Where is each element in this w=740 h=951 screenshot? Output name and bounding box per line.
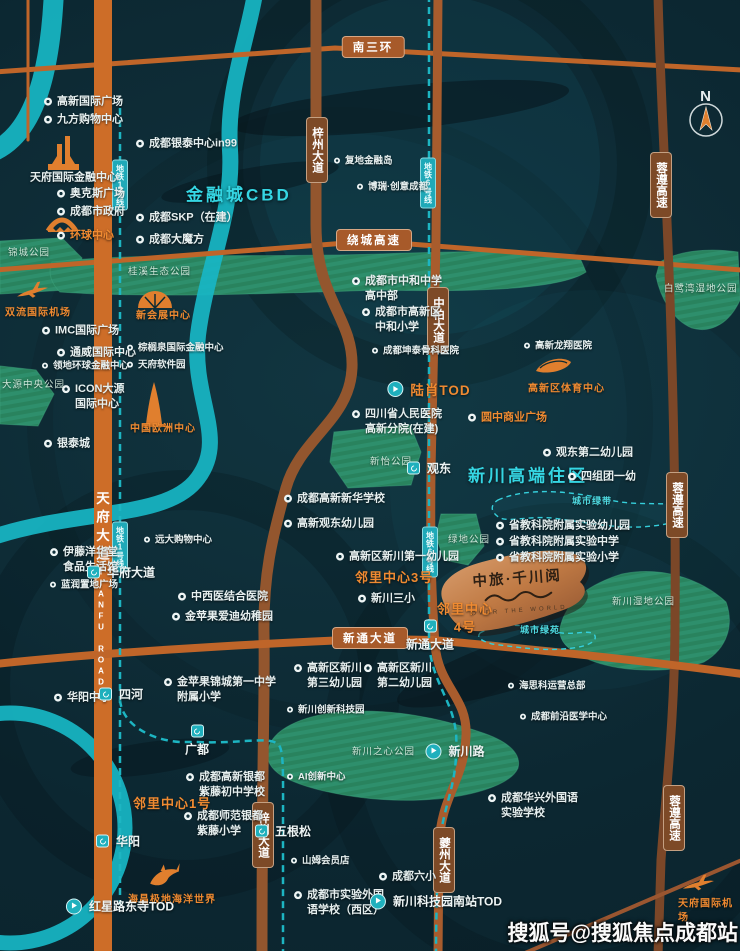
poi-label: 成都市政府 <box>57 205 125 220</box>
poi-text: 锦城公园 <box>8 248 50 261</box>
project-logo: 中旅·千川阅 OVER THE WORLD <box>446 562 591 619</box>
poi-marker-icon <box>294 891 302 899</box>
poi-marker-icon <box>362 308 370 316</box>
poi-text: 成都市中和中学 高中部 <box>365 274 442 304</box>
poi-label: 四组团一幼 <box>568 470 636 485</box>
poi-marker-icon <box>136 140 144 148</box>
poi-marker-icon <box>352 410 360 418</box>
compass-n-label: N <box>700 88 712 105</box>
poi-text: 高新国际广场 <box>57 95 123 110</box>
station-name: 四河 <box>119 686 143 703</box>
station-name: 新川科技园南站TOD <box>393 893 502 910</box>
poi-label: 四川省人民医院 高新分院(在建) <box>352 407 442 437</box>
poi-marker-icon <box>372 348 378 354</box>
poi-marker-icon <box>488 794 496 802</box>
poi-text: 复地金融岛 <box>345 156 393 169</box>
station-name: 五根松 <box>275 823 311 840</box>
poi-text: 省教科院附属实验幼儿园 <box>509 519 630 534</box>
poi-text: 成都华兴外国语 实验学校 <box>501 791 578 821</box>
station-name: 广都 <box>185 741 209 758</box>
poi-label: 成都师范银都 紫藤小学 <box>184 809 263 839</box>
poi-marker-icon <box>364 664 372 672</box>
poi-text: 新川之心公园 <box>352 747 415 760</box>
location-map: 中旅·千川阅 OVER THE WORLD N 搜狐号@搜狐焦点成都站 高新国际… <box>0 0 740 951</box>
poi-marker-icon <box>184 812 192 820</box>
watermark: 搜狐号@搜狐焦点成都站 <box>508 917 738 947</box>
poi-text: 成都银泰中心in99 <box>149 137 237 152</box>
metro-station: 华阳 <box>96 833 140 850</box>
poi-label: 双流国际机场 <box>5 306 71 320</box>
poi-marker-icon <box>136 214 144 222</box>
poi-label: 九方购物中心 <box>44 113 123 128</box>
poi-label: 蓝润置地广场 <box>50 580 118 593</box>
poi-label: 城市绿带 <box>572 495 612 507</box>
poi-marker-icon <box>496 538 504 546</box>
metro-station-marker <box>96 835 109 848</box>
metro-station: 新川路 <box>425 743 484 760</box>
metro-station: 华府大道 <box>87 564 155 581</box>
poi-label: 圆中商业广场 <box>468 411 547 426</box>
poi-label: ICON大源 国际中心 <box>62 382 125 412</box>
station-name: 华府大道 <box>107 564 155 581</box>
ifs-towers-icon <box>48 136 79 170</box>
poi-label: 博瑞·创意成都 <box>357 182 428 195</box>
poi-label: 天府国际金融中心 <box>30 171 118 186</box>
poi-label: 银泰城 <box>44 437 90 452</box>
poi-marker-icon <box>50 582 56 588</box>
poi-text: 新川湿地公园 <box>612 597 675 610</box>
poi-marker-icon <box>284 520 292 528</box>
poi-label: 成都SKP（在建） <box>136 211 238 226</box>
poi-text: 中国欧洲中心 <box>130 422 196 436</box>
road-label-pill: 蓉遵高速 <box>666 472 688 538</box>
compass: N <box>687 88 725 106</box>
metro-station-marker <box>66 898 82 914</box>
poi-marker-icon <box>57 349 65 357</box>
metro-station-marker <box>425 743 441 759</box>
poi-label: 成都市高新区 中和小学 <box>362 305 441 335</box>
poi-text: 九方购物中心 <box>57 113 123 128</box>
poi-text: 高新区体育中心 <box>528 382 605 396</box>
poi-marker-icon <box>468 414 476 422</box>
poi-label: 绿地公园 <box>448 535 490 548</box>
poi-label: 高新龙翔医院 <box>524 341 592 354</box>
poi-label: 复地金融岛 <box>334 156 393 169</box>
poi-text: 双流国际机场 <box>5 306 71 320</box>
poi-label: 中国欧洲中心 <box>130 422 196 436</box>
poi-label: 成都银泰中心in99 <box>136 137 237 152</box>
poi-marker-icon <box>358 595 366 603</box>
poi-marker-icon <box>50 548 58 556</box>
poi-text: 成都高新新华学校 <box>297 492 385 507</box>
poi-label: 新会展中心 <box>136 309 191 323</box>
poi-label: 成都前沿医学中心 <box>520 712 607 725</box>
poi-text: 环球中心 <box>70 229 114 244</box>
poi-text: 高新区新川 第二幼儿园 <box>377 661 432 691</box>
poi-text: 金苹果爱迪幼稚园 <box>185 610 273 625</box>
poi-text: 成都大魔方 <box>149 233 204 248</box>
poi-label: 城市绿苑 <box>520 624 560 636</box>
metro-station: 广都 <box>185 725 209 758</box>
poi-text: 蓝润置地广场 <box>61 580 118 593</box>
poi-text: 棕榈泉国际金融中心 <box>138 343 224 356</box>
poi-label: 远大购物中心 <box>144 535 212 548</box>
poi-label: 成都坤泰骨科医院 <box>372 346 459 359</box>
poi-label: 新川三小 <box>358 592 415 607</box>
poi-text: 海思科运营总部 <box>519 681 586 694</box>
poi-marker-icon <box>496 522 504 530</box>
poi-label: 高新区体育中心 <box>528 382 605 396</box>
poi-label: 高新区新川第一幼儿园 <box>336 550 459 565</box>
poi-label: 省教科院附属实验幼儿园 <box>496 519 630 534</box>
poi-text: 成都市高新区 中和小学 <box>375 305 441 335</box>
metro-station-marker <box>387 381 403 397</box>
station-name: 观东 <box>427 460 451 477</box>
poi-label: 大源中央公园 <box>2 380 65 393</box>
station-name: 红星路东寺TOD <box>89 898 174 915</box>
poi-label: 金苹果锦城第一中学 附属小学 <box>164 675 276 705</box>
metro-station: 红星路东寺TOD <box>66 898 174 915</box>
metro-station-marker <box>370 893 386 909</box>
metro-station-marker <box>255 825 268 838</box>
station-name: 华阳 <box>116 833 140 850</box>
poi-marker-icon <box>44 440 52 448</box>
metro-station: 四河 <box>99 686 143 703</box>
poi-label: 桂溪生态公园 <box>128 267 191 280</box>
poi-marker-icon <box>336 553 344 561</box>
poi-marker-icon <box>57 208 65 216</box>
poi-text: 四组团一幼 <box>581 470 636 485</box>
poi-text: 成都六小 <box>392 870 436 885</box>
poi-text: 省教科院附属实验中学 <box>509 535 619 550</box>
poi-marker-icon <box>164 678 172 686</box>
poi-label: 锦城公园 <box>8 248 50 261</box>
poi-text: 成都坤泰骨科医院 <box>383 346 459 359</box>
poi-text: 天府国际金融中心 <box>30 171 118 186</box>
poi-text: 邻里中心3号 <box>355 569 433 587</box>
poi-text: 大源中央公园 <box>2 380 65 393</box>
poi-label: 领地环球金融中心 <box>42 361 129 374</box>
poi-marker-icon <box>172 613 180 621</box>
poi-text: 新川三小 <box>371 592 415 607</box>
poi-marker-icon <box>57 232 65 240</box>
poi-marker-icon <box>42 327 50 335</box>
poi-text: 新会展中心 <box>136 309 191 323</box>
poi-text: 银泰城 <box>57 437 90 452</box>
poi-text: 高新区新川 第三幼儿园 <box>307 661 362 691</box>
poi-label: 高新区新川 第二幼儿园 <box>364 661 432 691</box>
poi-marker-icon <box>44 116 52 124</box>
poi-text: 成都SKP（在建） <box>149 211 238 226</box>
poi-text: 观东第二幼儿园 <box>556 446 633 461</box>
station-name: 陆肖TOD <box>410 379 470 399</box>
poi-marker-icon <box>136 236 144 244</box>
poi-text: 绿地公园 <box>448 535 490 548</box>
poi-label: 环球中心 <box>57 229 114 244</box>
road-label-pill: 蓉遵高速 <box>650 152 672 218</box>
poi-label: 成都市中和中学 高中部 <box>352 274 442 304</box>
metro-station: 观东 <box>407 460 451 477</box>
compass-icon <box>690 104 722 136</box>
poi-text: 高新区新川第一幼儿园 <box>349 550 459 565</box>
poi-marker-icon <box>284 495 292 503</box>
metro-station: 新川科技园南站TOD <box>370 893 502 910</box>
poi-marker-icon <box>543 449 551 457</box>
metro-station: 陆肖TOD <box>387 379 470 399</box>
poi-text: 成都师范银都 紫藤小学 <box>197 809 263 839</box>
road-label-pill: 夔州大道 <box>433 827 455 893</box>
metro-station: 新通大道 <box>406 620 454 653</box>
poi-marker-icon <box>508 683 514 689</box>
metro-station-marker <box>423 620 436 633</box>
poi-text: 成都前沿医学中心 <box>531 712 607 725</box>
poi-label: 金融城CBD <box>186 185 292 208</box>
poi-text: 新川创新科技园 <box>298 705 365 718</box>
poi-marker-icon <box>287 774 293 780</box>
poi-text: 博瑞·创意成都 <box>368 182 428 195</box>
metro-station-marker <box>87 566 100 579</box>
road-label-pill: 蓉遵高速 <box>663 785 685 851</box>
poi-text: 城市绿带 <box>572 495 612 507</box>
poi-label: 中西医结合医院 <box>178 590 268 605</box>
poi-text: 高新观东幼儿园 <box>297 517 374 532</box>
poi-label: 新川之心公园 <box>352 747 415 760</box>
poi-label: 新川湿地公园 <box>612 597 675 610</box>
poi-text: 圆中商业广场 <box>481 411 547 426</box>
poi-label: 天府软件园 <box>127 360 186 373</box>
poi-marker-icon <box>57 190 65 198</box>
poi-label: 成都华兴外国语 实验学校 <box>488 791 578 821</box>
poi-marker-icon <box>178 593 186 601</box>
poi-text: 金苹果锦城第一中学 附属小学 <box>177 675 276 705</box>
poi-marker-icon <box>62 385 70 393</box>
poi-marker-icon <box>352 277 360 285</box>
poi-text: 金融城CBD <box>186 185 292 208</box>
poi-label: AI创新中心 <box>287 772 346 785</box>
poi-label: 高新区新川 第三幼儿园 <box>294 661 362 691</box>
poi-text: AI创新中心 <box>298 772 346 785</box>
road-label-pill: 梓州大道 <box>306 117 328 183</box>
poi-label: 棕榈泉国际金融中心 <box>127 343 224 356</box>
poi-marker-icon <box>42 363 48 369</box>
poi-marker-icon <box>568 473 576 481</box>
poi-text: 成都市政府 <box>70 205 125 220</box>
poi-label: IMC国际广场 <box>42 324 119 339</box>
poi-marker-icon <box>287 707 293 713</box>
poi-marker-icon <box>334 158 340 164</box>
poi-text: 新怡公园 <box>370 457 412 470</box>
poi-marker-icon <box>144 537 150 543</box>
road-label-pill: 新通大道 <box>332 627 408 649</box>
road-label-pill: 绕城高速 <box>336 229 412 251</box>
poi-marker-icon <box>520 714 526 720</box>
poi-marker-icon <box>496 554 504 562</box>
poi-marker-icon <box>186 773 194 781</box>
poi-text: 四川省人民医院 高新分院(在建) <box>365 407 442 437</box>
poi-marker-icon <box>524 343 530 349</box>
poi-label: 新怡公园 <box>370 457 412 470</box>
poi-marker-icon <box>379 873 387 881</box>
poi-label: 新川创新科技园 <box>287 705 365 718</box>
poi-label: 成都六小 <box>379 870 436 885</box>
poi-label: 奥克斯广场 <box>57 187 125 202</box>
metro-station-marker <box>407 462 420 475</box>
poi-text: 领地环球金融中心 <box>53 361 129 374</box>
poi-text: ICON大源 国际中心 <box>75 382 125 412</box>
poi-label: 白鹭湾湿地公园 <box>664 284 738 297</box>
metro-station-marker <box>190 725 203 738</box>
poi-label: 海思科运营总部 <box>508 681 586 694</box>
poi-label: 观东第二幼儿园 <box>543 446 633 461</box>
poi-label: 成都高新新华学校 <box>284 492 385 507</box>
poi-label: 金苹果爱迪幼稚园 <box>172 610 273 625</box>
metro-station-marker <box>99 688 112 701</box>
metro-station: 五根松 <box>255 823 311 840</box>
poi-marker-icon <box>294 664 302 672</box>
poi-text: 天府软件园 <box>138 360 186 373</box>
poi-text: 中西医结合医院 <box>191 590 268 605</box>
poi-label: 高新国际广场 <box>44 95 123 110</box>
station-name: 新川路 <box>448 743 484 760</box>
poi-text: IMC国际广场 <box>55 324 119 339</box>
poi-marker-icon <box>291 858 297 864</box>
poi-marker-icon <box>357 184 363 190</box>
station-name: 新通大道 <box>406 636 454 653</box>
poi-text: 远大购物中心 <box>155 535 212 548</box>
poi-marker-icon <box>44 98 52 106</box>
poi-label: 通威国际中心 <box>57 346 136 361</box>
poi-marker-icon <box>54 694 62 702</box>
poi-text: 山姆会员店 <box>302 856 350 869</box>
poi-text: 城市绿苑 <box>520 624 560 636</box>
poi-text: 白鹭湾湿地公园 <box>664 284 738 297</box>
poi-marker-icon <box>127 362 133 368</box>
poi-label: 高新观东幼儿园 <box>284 517 374 532</box>
poi-marker-icon <box>127 345 133 351</box>
poi-label: 山姆会员店 <box>291 856 350 869</box>
europe-center-tower-icon <box>142 382 166 427</box>
poi-text: 高新龙翔医院 <box>535 341 592 354</box>
poi-label: 邻里中心3号 <box>355 569 433 587</box>
road-label-pill: 南三环 <box>342 36 405 58</box>
poi-text: 桂溪生态公园 <box>128 267 191 280</box>
poi-label: 成都大魔方 <box>136 233 204 248</box>
poi-text: 奥克斯广场 <box>70 187 125 202</box>
poi-label: 省教科院附属实验中学 <box>496 535 619 550</box>
